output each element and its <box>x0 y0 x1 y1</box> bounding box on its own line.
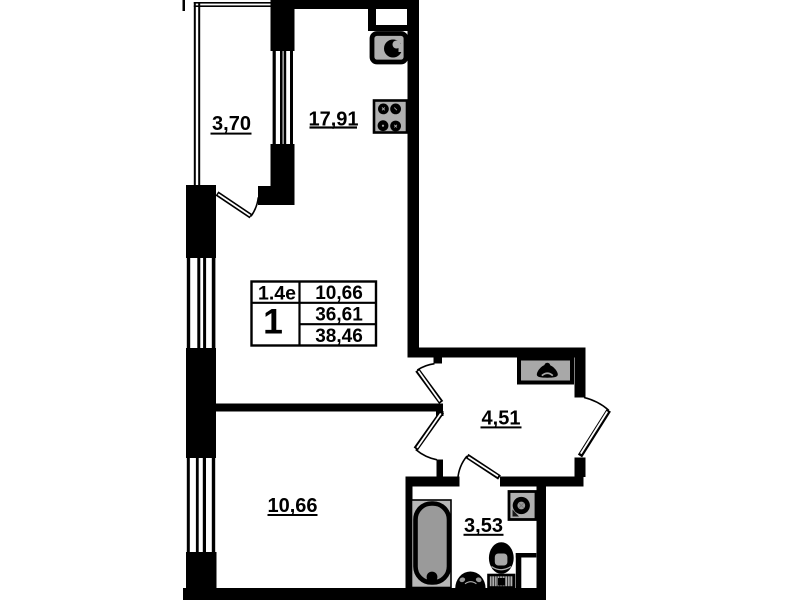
svg-text:3,53: 3,53 <box>464 515 503 537</box>
svg-text:1: 1 <box>263 302 283 342</box>
svg-text:10,66: 10,66 <box>315 283 363 304</box>
svg-text:3,70: 3,70 <box>212 113 251 135</box>
svg-text:10,66: 10,66 <box>267 495 317 517</box>
svg-text:36,61: 36,61 <box>315 305 363 326</box>
svg-text:4,51: 4,51 <box>482 408 521 430</box>
svg-text:38,46: 38,46 <box>315 326 363 347</box>
